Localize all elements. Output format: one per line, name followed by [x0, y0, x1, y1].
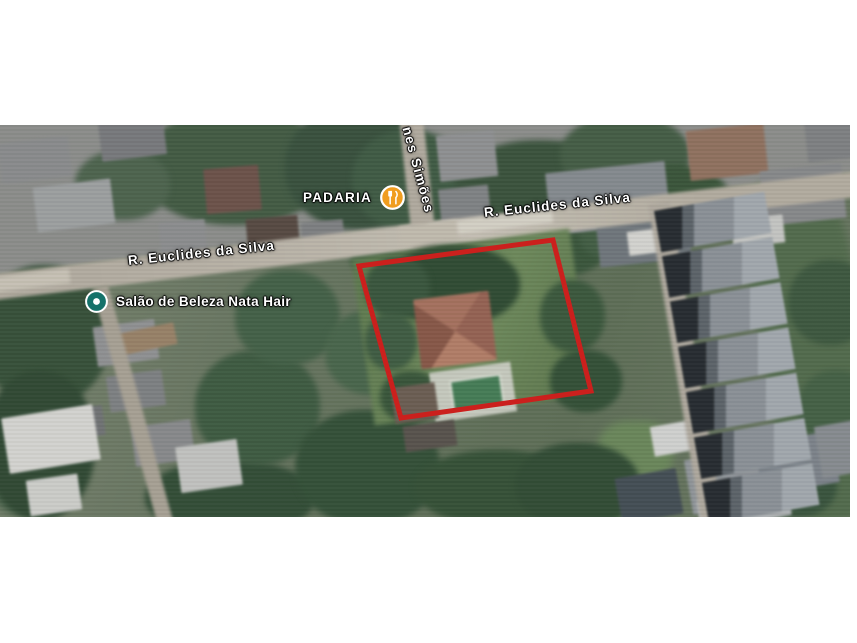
poi-padaria[interactable]: PADARIA	[303, 184, 406, 211]
map-screenshot: R. Euclides da Silva R. Euclides da Silv…	[0, 0, 857, 643]
restaurant-icon[interactable]	[379, 184, 406, 211]
poi-salao-label[interactable]: Salão de Beleza Nata Hair	[116, 294, 291, 309]
building-roof	[203, 165, 262, 215]
house-roof	[413, 291, 497, 370]
letterbox-bottom	[0, 517, 857, 643]
map-right-edge	[850, 125, 857, 517]
beauty-salon-icon[interactable]	[84, 289, 109, 314]
building-roof	[33, 178, 116, 232]
building-roof	[436, 130, 498, 182]
property-tree	[550, 350, 622, 412]
poi-salao-beleza[interactable]: Salão de Beleza Nata Hair	[84, 289, 291, 314]
trees	[788, 260, 857, 345]
satellite-map[interactable]: R. Euclides da Silva R. Euclides da Silv…	[0, 125, 857, 517]
building-roof	[26, 474, 83, 517]
building-roof	[686, 125, 769, 181]
outbuilding-roof	[391, 382, 440, 424]
poi-padaria-label[interactable]: PADARIA	[303, 190, 372, 205]
building-roof	[0, 136, 72, 184]
property-tree	[365, 313, 417, 370]
letterbox-top	[0, 0, 857, 125]
building-roof	[175, 439, 243, 493]
outbuilding-roof	[402, 420, 457, 453]
property-tree	[540, 280, 605, 352]
